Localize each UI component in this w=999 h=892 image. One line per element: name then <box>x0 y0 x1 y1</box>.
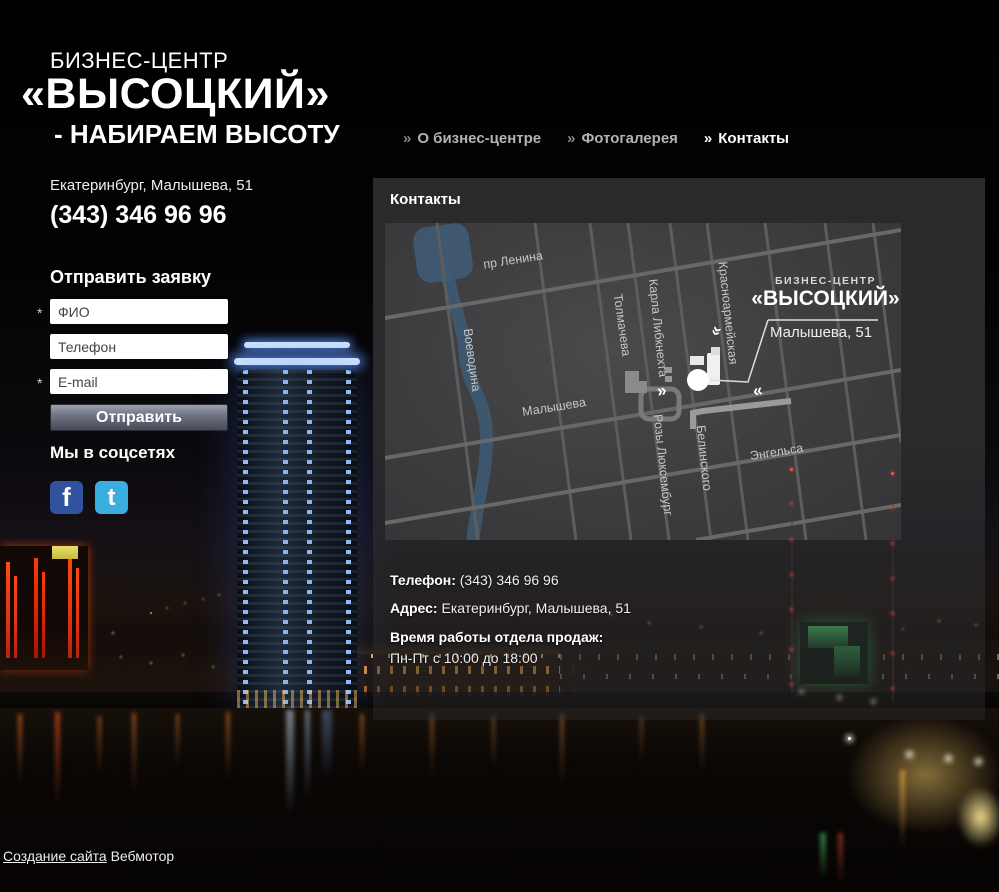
social-title: Мы в соцсетях <box>50 443 175 463</box>
header-address: Екатеринбург, Малышева, 51 <box>50 177 253 194</box>
location-map: пр Ленина Воеводина Толмачева Карла Либк… <box>385 223 901 540</box>
info-value: Екатеринбург, Малышева, 51 <box>442 600 631 616</box>
twitter-icon[interactable]: t <box>95 481 128 514</box>
tower-reflection <box>322 710 332 780</box>
tower-reflection <box>305 710 310 800</box>
vysotsky-tower <box>237 370 357 710</box>
chevron-right-icon: » <box>704 130 712 147</box>
info-hours: Время работы отдела продаж: Пн-Пт с 10:0… <box>390 627 603 669</box>
callout-title: «ВЫСОЦКИЙ» <box>748 287 901 311</box>
main-nav: » О бизнес-центре » Фотогалерея » Контак… <box>403 130 789 147</box>
reflection <box>176 714 179 769</box>
water <box>0 708 999 892</box>
tv-tower-red-lights <box>791 468 793 693</box>
city-window-lights <box>0 650 2 652</box>
info-label: Время работы отдела продаж: <box>390 627 603 648</box>
tv-tower-red-lights <box>892 472 894 702</box>
facebook-icon[interactable]: f <box>50 481 83 514</box>
map-callout: БИЗНЕС-ЦЕНТР «ВЫСОЦКИЙ» <box>748 275 901 311</box>
building-marker <box>687 369 709 391</box>
green-reflection <box>820 833 826 879</box>
nav-label: О бизнес-центре <box>417 130 541 147</box>
email-field[interactable] <box>50 369 228 394</box>
logo-title: «ВЫСОЦКИЙ» <box>21 70 330 119</box>
reflection <box>98 716 101 776</box>
reflection <box>640 716 643 766</box>
logo-slogan: - НАБИРАЕМ ВЫСОТУ <box>54 119 340 150</box>
river-path <box>447 273 486 540</box>
submit-button[interactable]: Отправить <box>50 404 228 431</box>
embankment-lamps <box>848 737 851 740</box>
crane-lights <box>150 612 152 614</box>
callout-address: Малышева, 51 <box>770 324 872 341</box>
tower-crown-light <box>234 358 360 365</box>
route-highlight <box>693 401 791 429</box>
map-drawing <box>385 223 901 540</box>
reflection <box>360 714 364 774</box>
tower-reflection <box>286 710 294 815</box>
reflection <box>430 714 434 779</box>
info-label: Телефон: <box>390 572 456 588</box>
map-building <box>625 371 647 393</box>
page-title: Контакты <box>390 191 461 208</box>
reflection <box>55 712 60 807</box>
reflection <box>492 716 495 771</box>
info-label: Адрес: <box>390 600 438 616</box>
site-creator-name: Вебмотор <box>111 848 175 864</box>
reflection <box>560 714 564 789</box>
nav-item-about[interactable]: » О бизнес-центре <box>403 130 541 147</box>
reflection <box>132 713 136 793</box>
map-building <box>711 347 720 355</box>
red-reflection <box>838 833 843 885</box>
nav-item-contacts[interactable]: » Контакты <box>704 130 789 147</box>
callout-business-center: БИЗНЕС-ЦЕНТР <box>748 275 901 287</box>
nav-label: Контакты <box>718 130 789 147</box>
tower-crown-light <box>244 342 350 348</box>
name-field[interactable] <box>50 299 228 324</box>
bright-lights <box>958 788 999 846</box>
chevron-right-icon: » <box>567 130 575 147</box>
info-address: Адрес: Екатеринбург, Малышева, 51 <box>390 600 631 616</box>
footer: Создание сайта Вебмотор <box>3 848 174 864</box>
nav-label: Фотогалерея <box>581 130 677 147</box>
header-phone: (343) 346 96 96 <box>50 201 227 230</box>
site-creation-link[interactable]: Создание сайта <box>3 848 107 864</box>
reflection <box>226 712 230 782</box>
info-value: Пн-Пт с 10:00 до 18:00 <box>390 650 538 666</box>
reflection <box>900 770 905 850</box>
nav-item-gallery[interactable]: » Фотогалерея <box>567 130 678 147</box>
map-building <box>690 356 704 365</box>
required-mark: * <box>37 375 42 391</box>
page: БИЗНЕС-ЦЕНТР «ВЫСОЦКИЙ» - НАБИРАЕМ ВЫСОТ… <box>0 0 999 892</box>
reflection <box>700 714 704 774</box>
info-value: (343) 346 96 96 <box>460 572 559 588</box>
chevron-right-icon: » <box>403 130 411 147</box>
info-phone: Телефон: (343) 346 96 96 <box>390 572 559 588</box>
reflection <box>18 714 22 784</box>
request-form-title: Отправить заявку <box>50 267 211 288</box>
phone-field[interactable] <box>50 334 228 359</box>
required-mark: * <box>37 305 42 321</box>
